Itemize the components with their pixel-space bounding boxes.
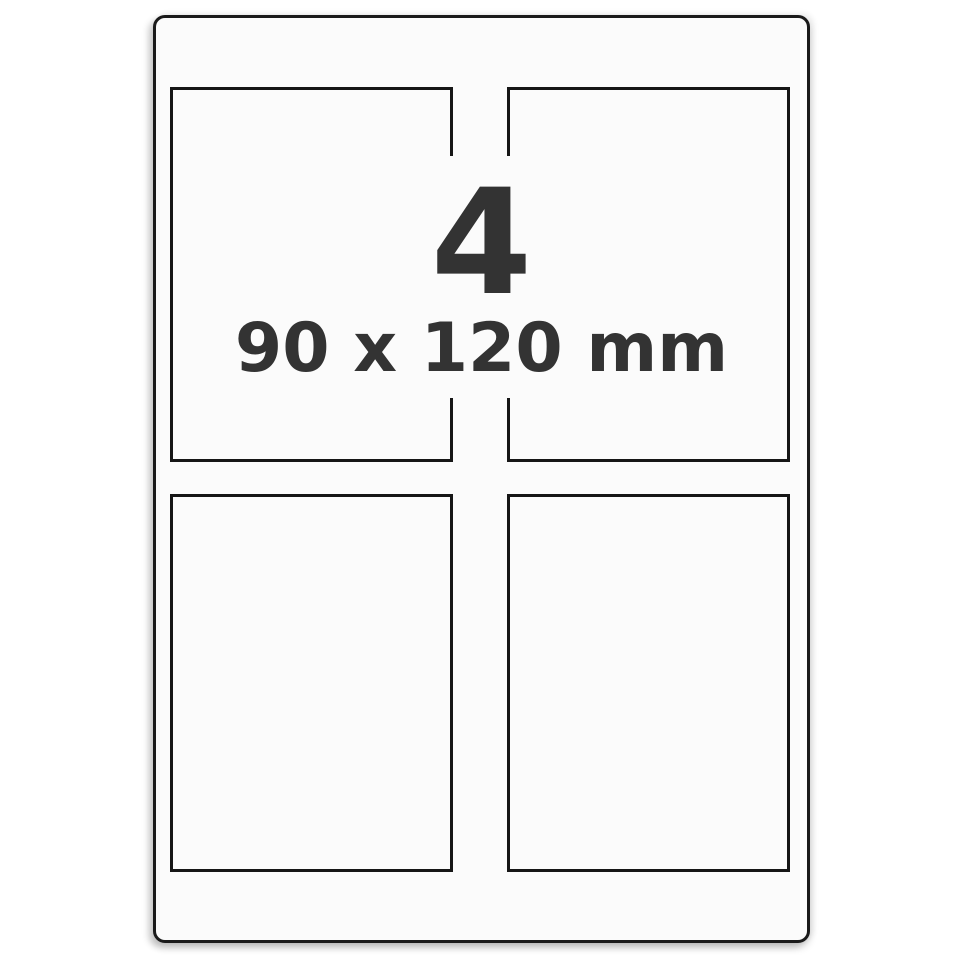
label-outline-bottom-right xyxy=(507,494,790,872)
product-image: 4 90 x 120 mm xyxy=(0,0,960,960)
label-dimensions-text: 90 x 120 mm xyxy=(156,315,807,383)
label-sheet: 4 90 x 120 mm xyxy=(153,15,810,943)
label-outline-bottom-left xyxy=(170,494,453,872)
labels-per-sheet-count: 4 xyxy=(156,170,807,316)
